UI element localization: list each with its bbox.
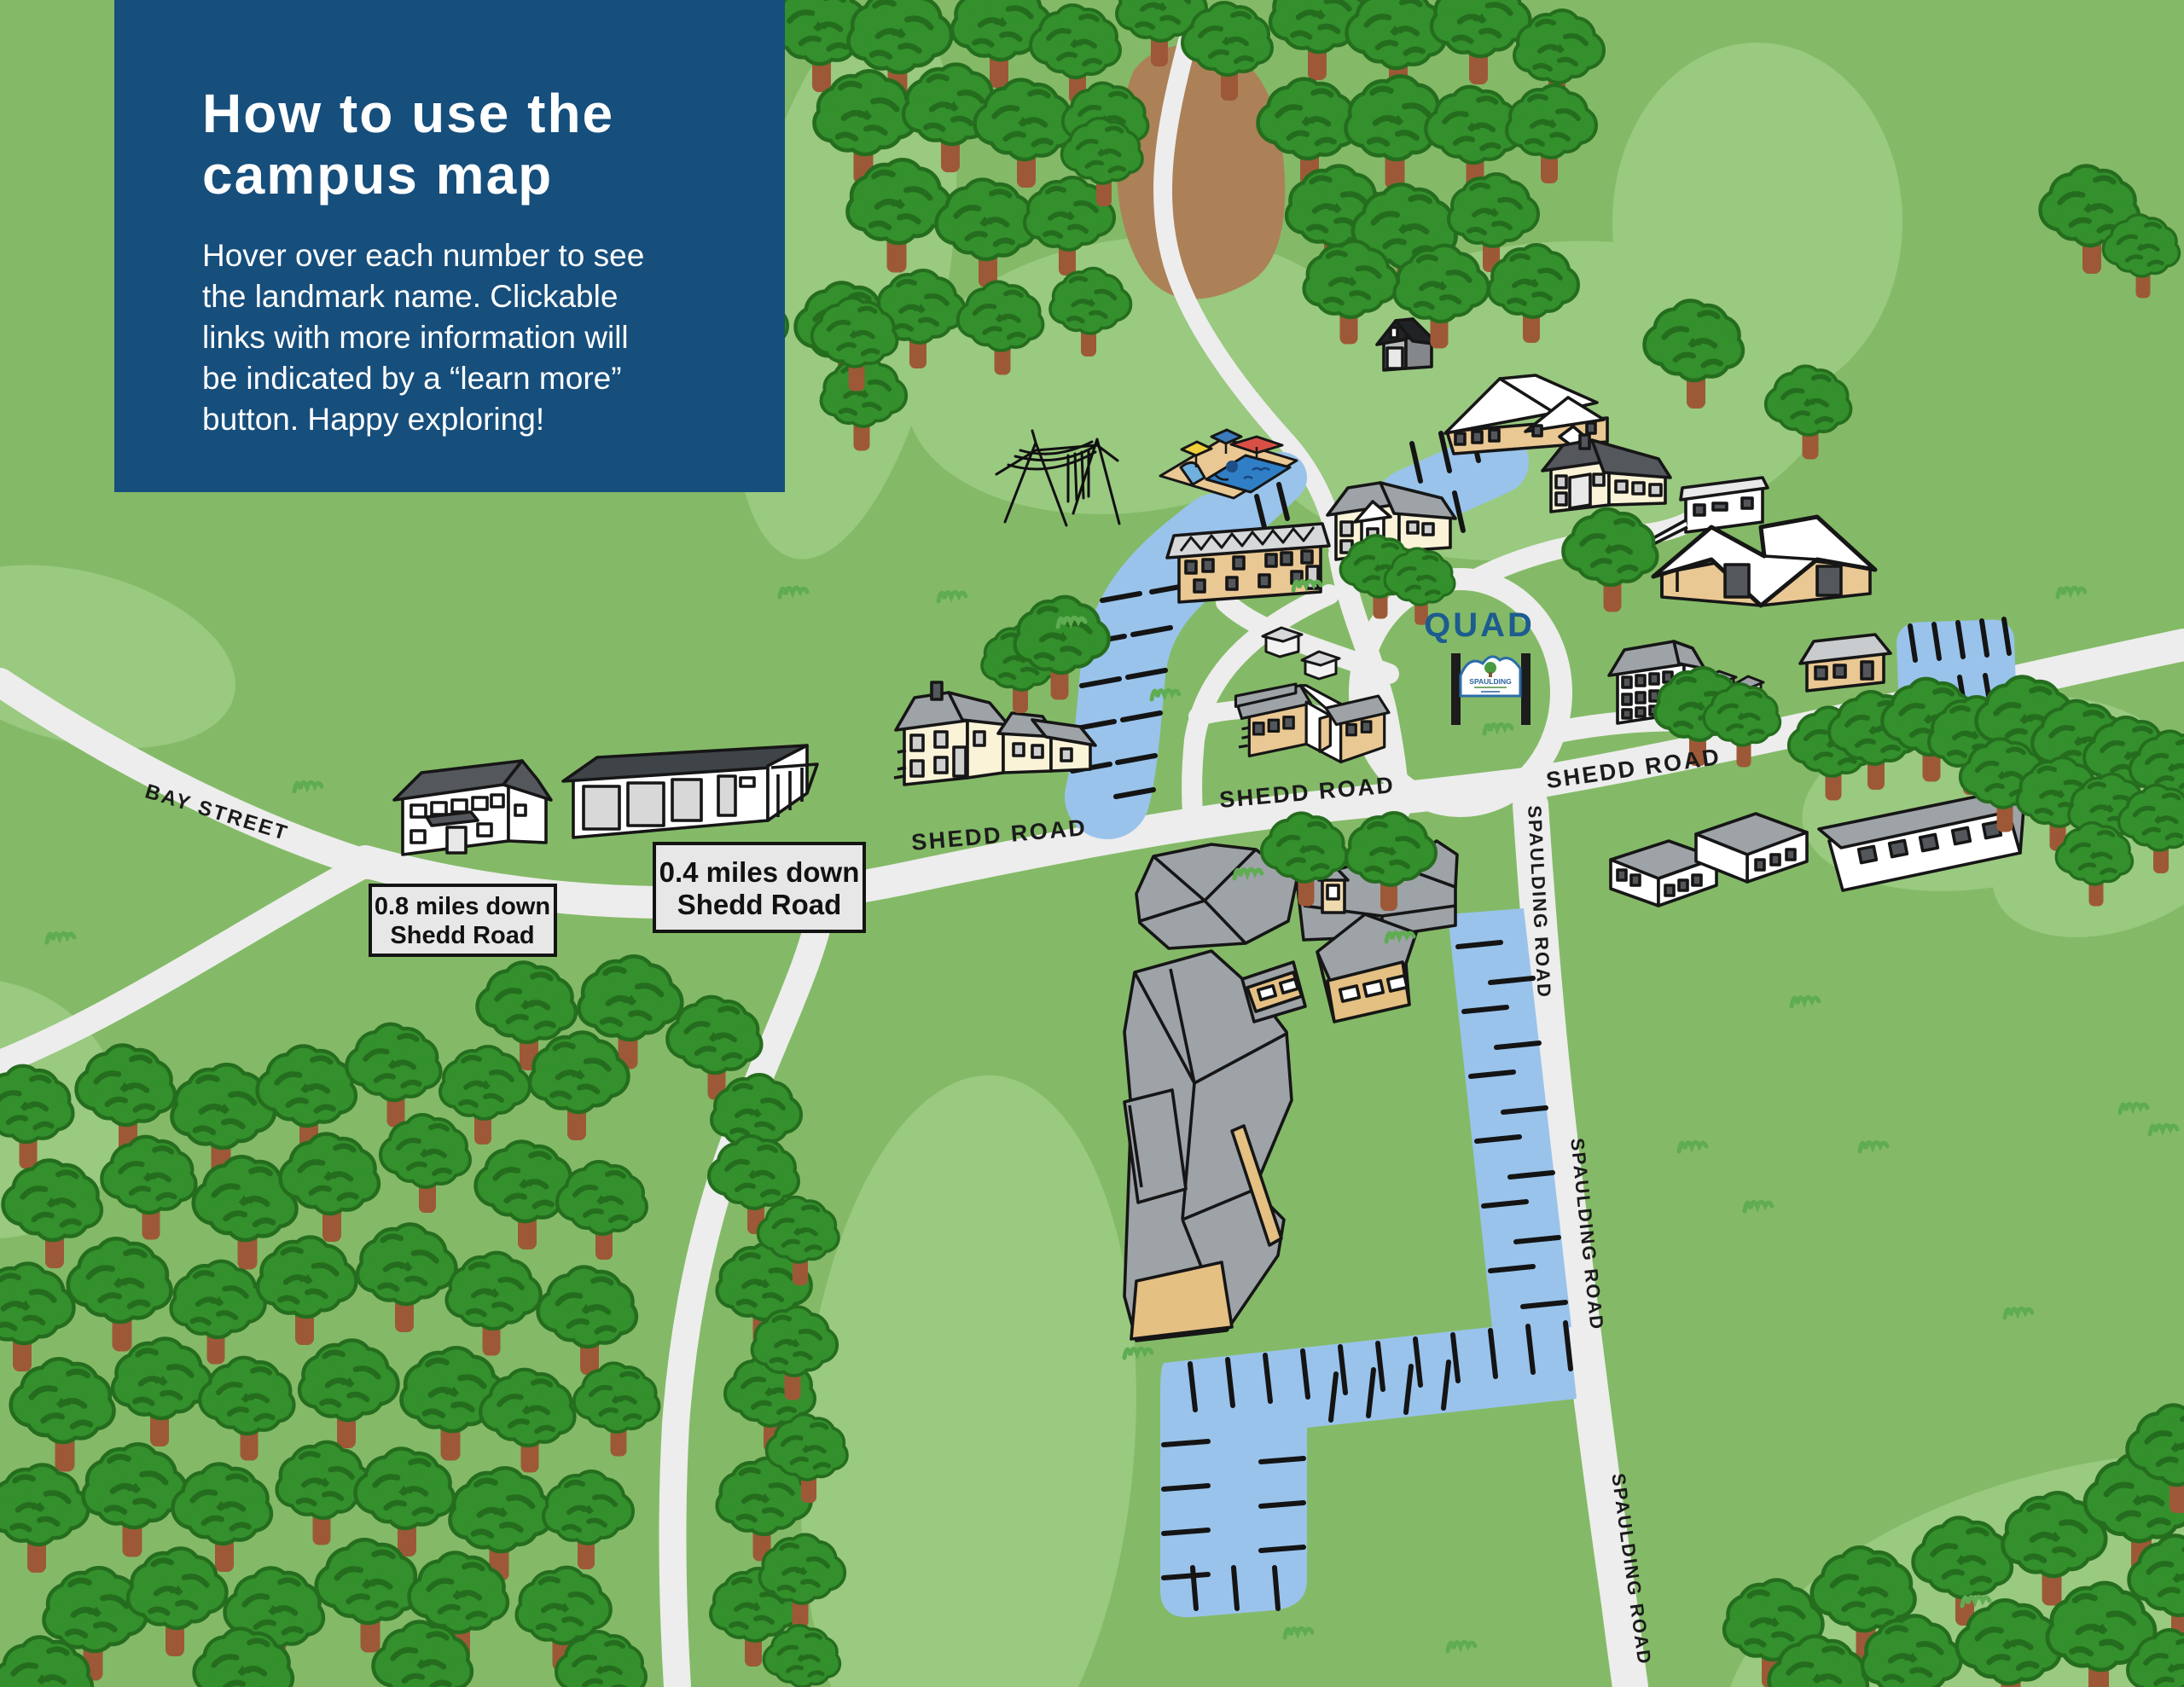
svg-text:the landmark name. Clickable: the landmark name. Clickable bbox=[202, 279, 618, 314]
svg-text:be indicated by a “learn more”: be indicated by a “learn more” bbox=[202, 361, 622, 396]
svg-text:button. Happy exploring!: button. Happy exploring! bbox=[202, 402, 544, 437]
svg-text:Shedd Road: Shedd Road bbox=[677, 889, 842, 920]
svg-text:QUAD: QUAD bbox=[1424, 606, 1535, 644]
svg-text:campus map: campus map bbox=[202, 144, 553, 206]
svg-text:0.4 miles down: 0.4 miles down bbox=[659, 856, 860, 888]
svg-text:SPAULDING: SPAULDING bbox=[1469, 677, 1512, 686]
svg-text:Shedd Road: Shedd Road bbox=[390, 922, 534, 949]
svg-text:How to use the: How to use the bbox=[202, 83, 614, 144]
svg-text:Hover over each number to see: Hover over each number to see bbox=[202, 238, 644, 273]
svg-text:0.8 miles down: 0.8 miles down bbox=[375, 893, 550, 920]
svg-text:links with more information wi: links with more information will bbox=[202, 320, 629, 355]
